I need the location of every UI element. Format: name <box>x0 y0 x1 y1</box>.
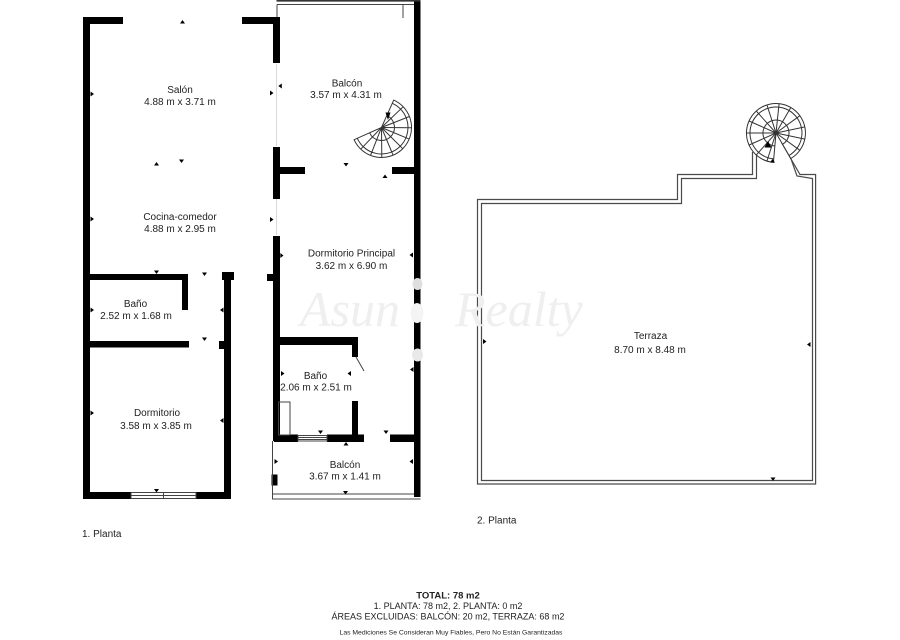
svg-text:Balcón: Balcón <box>332 79 363 90</box>
svg-text:4.88 m x 2.95 m: 4.88 m x 2.95 m <box>144 224 216 235</box>
svg-text:Cocina-comedor: Cocina-comedor <box>143 212 217 223</box>
svg-text:Baño: Baño <box>124 299 148 310</box>
svg-text:Dormitorio Principal: Dormitorio Principal <box>308 249 395 260</box>
svg-text:2. Planta: 2. Planta <box>477 516 517 527</box>
svg-text:4.88 m x 3.71 m: 4.88 m x 3.71 m <box>144 97 216 108</box>
svg-text:Dormitorio: Dormitorio <box>134 408 181 419</box>
svg-text:Realty: Realty <box>454 281 584 337</box>
svg-text:3.58 m x 3.85 m: 3.58 m x 3.85 m <box>120 421 192 432</box>
svg-text:1. Planta: 1. Planta <box>82 529 122 540</box>
svg-text:8.70 m x 8.48 m: 8.70 m x 8.48 m <box>614 345 686 356</box>
svg-text:3.67 m x 1.41 m: 3.67 m x 1.41 m <box>309 472 381 483</box>
svg-text:2.52 m x 1.68 m: 2.52 m x 1.68 m <box>100 311 172 322</box>
svg-text:3.62 m x 6.90 m: 3.62 m x 6.90 m <box>316 261 388 272</box>
svg-text:Terraza: Terraza <box>634 331 668 342</box>
svg-text:Baño: Baño <box>304 371 328 382</box>
svg-text:Salón: Salón <box>167 85 193 96</box>
svg-text:1. PLANTA: 78 m2, 2. PLANTA: 0: 1. PLANTA: 78 m2, 2. PLANTA: 0 m2 <box>374 601 523 611</box>
svg-text:ÁREAS EXCLUIDAS: BALCÓN: 20 m2: ÁREAS EXCLUIDAS: BALCÓN: 20 m2, TERRAZA:… <box>332 611 565 621</box>
svg-text:3.57 m x 4.31 m: 3.57 m x 4.31 m <box>310 90 382 101</box>
svg-text:Balcón: Balcón <box>330 460 361 471</box>
svg-text:Las Mediciones Se Consideran M: Las Mediciones Se Consideran Muy Fiables… <box>340 629 564 636</box>
svg-text:Asun: Asun <box>297 281 400 337</box>
svg-text:2.06 m x 2.51 m: 2.06 m x 2.51 m <box>280 383 352 394</box>
